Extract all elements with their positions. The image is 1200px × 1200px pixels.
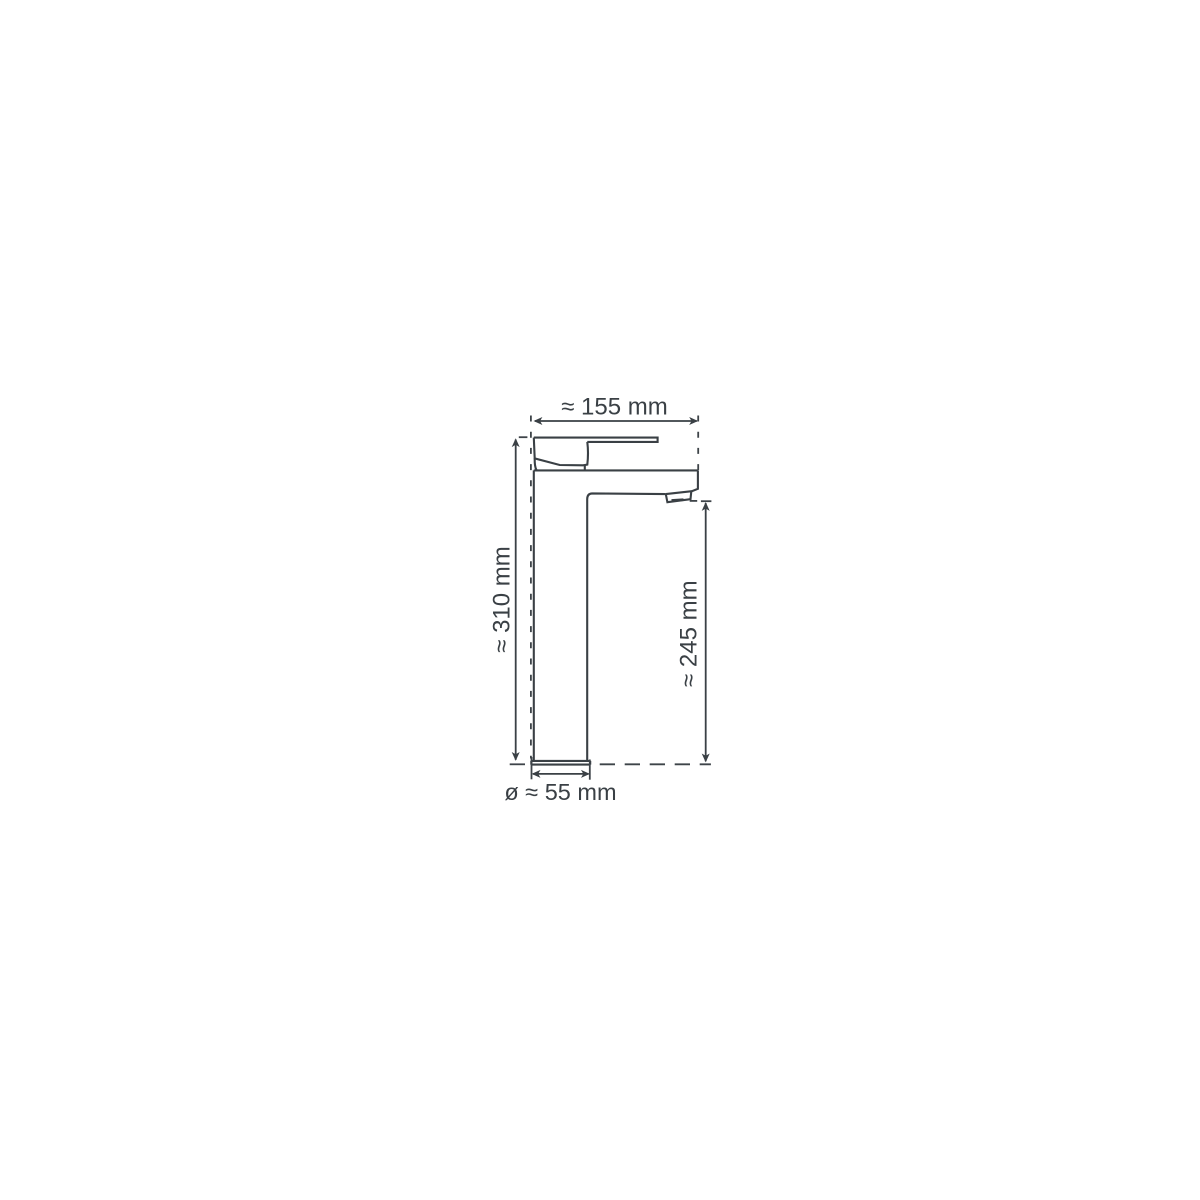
svg-text:≈ 310 mm: ≈ 310 mm bbox=[489, 546, 516, 653]
svg-text:≈ 155 mm: ≈ 155 mm bbox=[561, 394, 668, 421]
svg-text:ø ≈ 55 mm: ø ≈ 55 mm bbox=[504, 779, 616, 805]
svg-text:≈ 245 mm: ≈ 245 mm bbox=[676, 580, 703, 687]
